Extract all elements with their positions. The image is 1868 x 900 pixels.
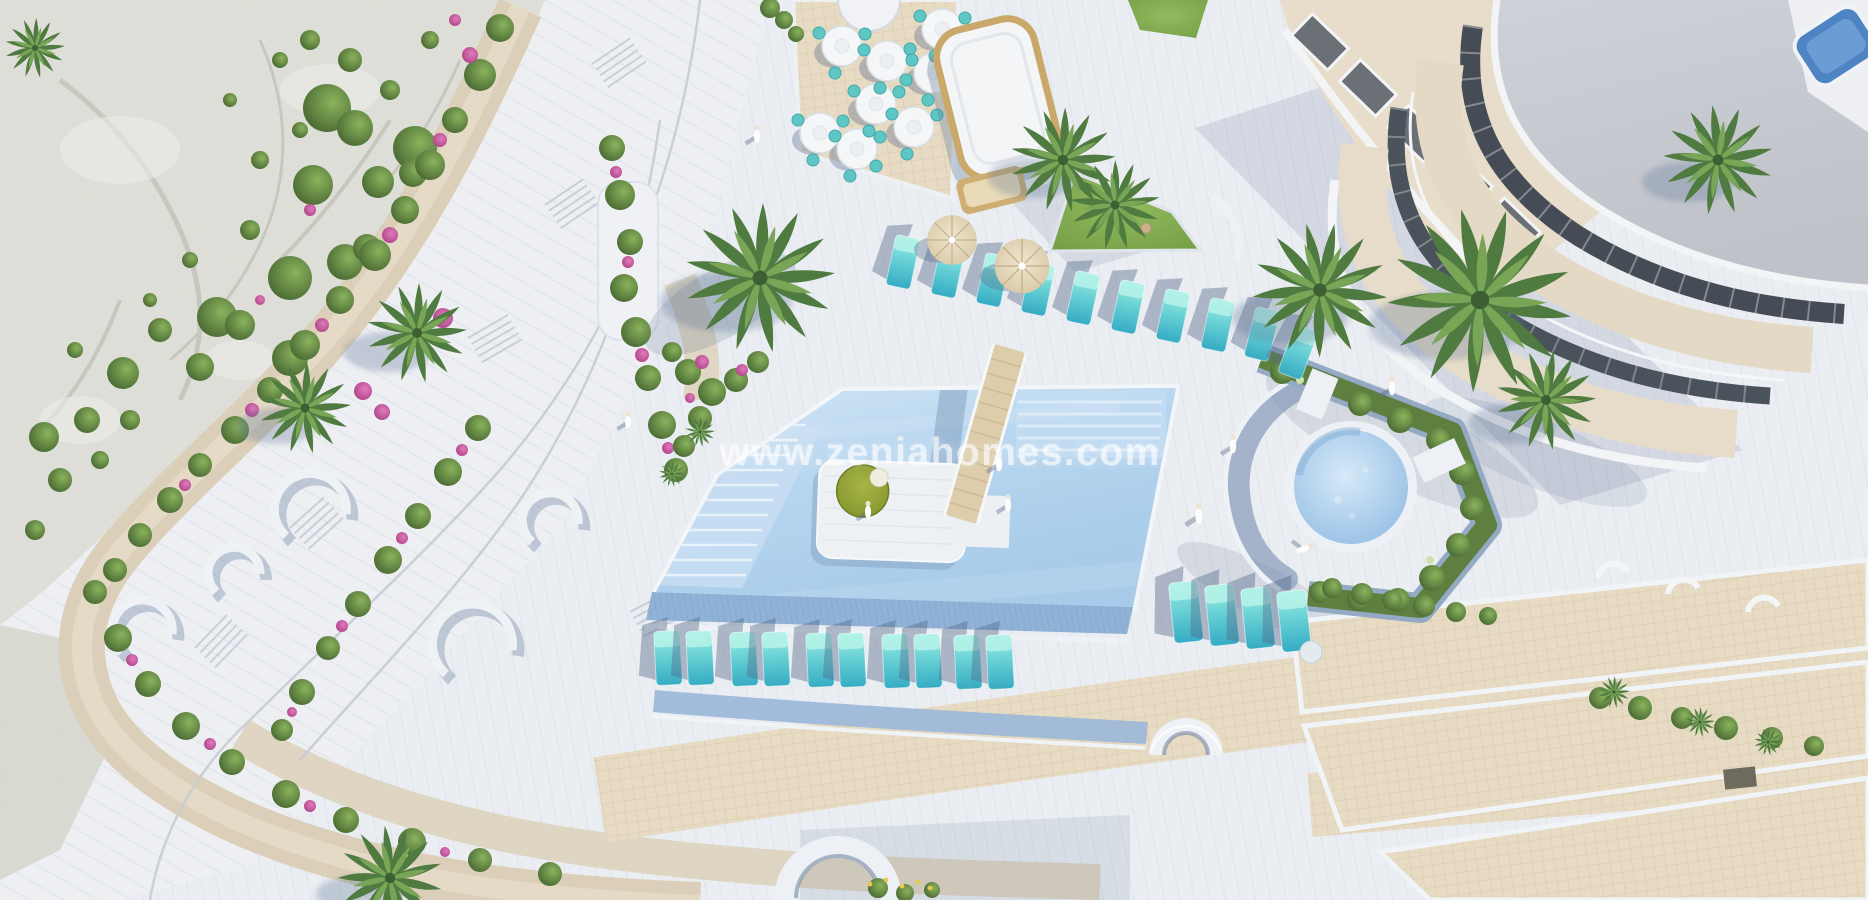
watermark: www.zeniahomes.com: [719, 431, 1161, 475]
exercise-ball: [1300, 641, 1322, 663]
aerial-render: www.zeniahomes.com: [0, 0, 1868, 900]
